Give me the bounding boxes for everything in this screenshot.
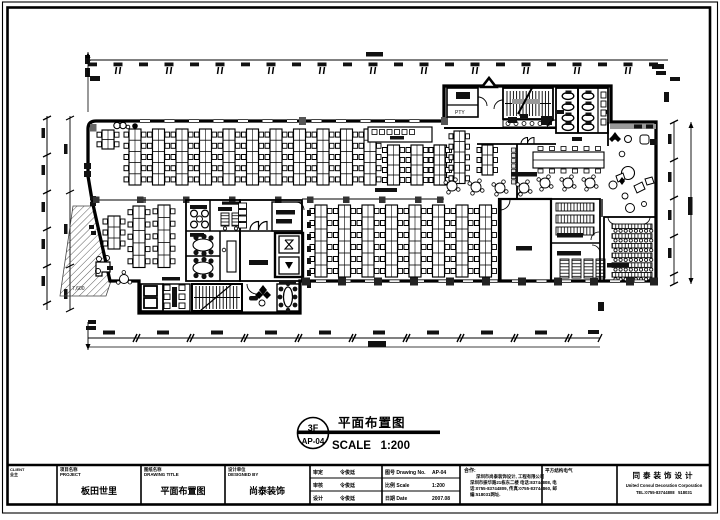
svg-text:TEL:0755-83744808 518031: TEL:0755-83744808 518031 bbox=[636, 490, 693, 495]
svg-text:设计: 设计 bbox=[313, 495, 323, 502]
svg-text:编:518031网址.: 编:518031网址. bbox=[470, 491, 501, 498]
svg-text:United Consul Decoration Corpo: United Consul Decoration Corporation bbox=[626, 483, 703, 488]
svg-text:AP-04: AP-04 bbox=[432, 470, 446, 476]
svg-text:PTY: PTY bbox=[455, 110, 465, 116]
svg-text:尚泰装饰: 尚泰装饰 bbox=[249, 485, 285, 496]
svg-text:1:200: 1:200 bbox=[432, 483, 445, 489]
svg-text:DESIGNED BY: DESIGNED BY bbox=[228, 472, 258, 477]
svg-text:平方结构电气: 平方结构电气 bbox=[545, 467, 573, 474]
svg-text:同泰装饰设计: 同泰装饰设计 bbox=[633, 470, 696, 480]
svg-text:PROJECT: PROJECT bbox=[60, 472, 81, 477]
svg-text:审核: 审核 bbox=[313, 482, 323, 489]
svg-text:日期 Date: 日期 Date bbox=[385, 495, 407, 502]
svg-text:DRAWING TITLE: DRAWING TITLE bbox=[144, 472, 179, 477]
svg-text:7,600: 7,600 bbox=[72, 286, 85, 292]
svg-text:平面布置图: 平面布置图 bbox=[338, 415, 406, 430]
svg-text:比例 Scale: 比例 Scale bbox=[385, 482, 410, 489]
svg-text:合作:: 合作: bbox=[463, 467, 476, 474]
svg-text:SCALE 1:200: SCALE 1:200 bbox=[332, 440, 410, 452]
svg-text:令俊廷: 令俊廷 bbox=[340, 469, 356, 476]
svg-text:AP-04: AP-04 bbox=[302, 437, 325, 446]
svg-text:审定: 审定 bbox=[313, 469, 323, 476]
svg-text:话:0755-83744809, 传真:0755-83744: 话:0755-83744809, 传真:0755-83744860, 邮 bbox=[470, 485, 558, 492]
svg-text:深圳市尚泰装饰设计, 工程有限公司: 深圳市尚泰装饰设计, 工程有限公司 bbox=[476, 473, 544, 480]
svg-text:板田世里: 板田世里 bbox=[81, 485, 117, 496]
svg-text:深圳市振华路21栋东二楼 电话:83744808, 电: 深圳市振华路21栋东二楼 电话:83744808, 电 bbox=[470, 479, 557, 486]
svg-text:令俊廷: 令俊廷 bbox=[340, 482, 356, 489]
svg-text:图号 Drawing No.: 图号 Drawing No. bbox=[385, 469, 426, 476]
svg-text:令俊廷: 令俊廷 bbox=[340, 495, 356, 502]
svg-text:平面布置图: 平面布置图 bbox=[160, 485, 205, 496]
svg-text:2007.08: 2007.08 bbox=[432, 496, 450, 502]
svg-text:业主: 业主 bbox=[10, 471, 18, 477]
